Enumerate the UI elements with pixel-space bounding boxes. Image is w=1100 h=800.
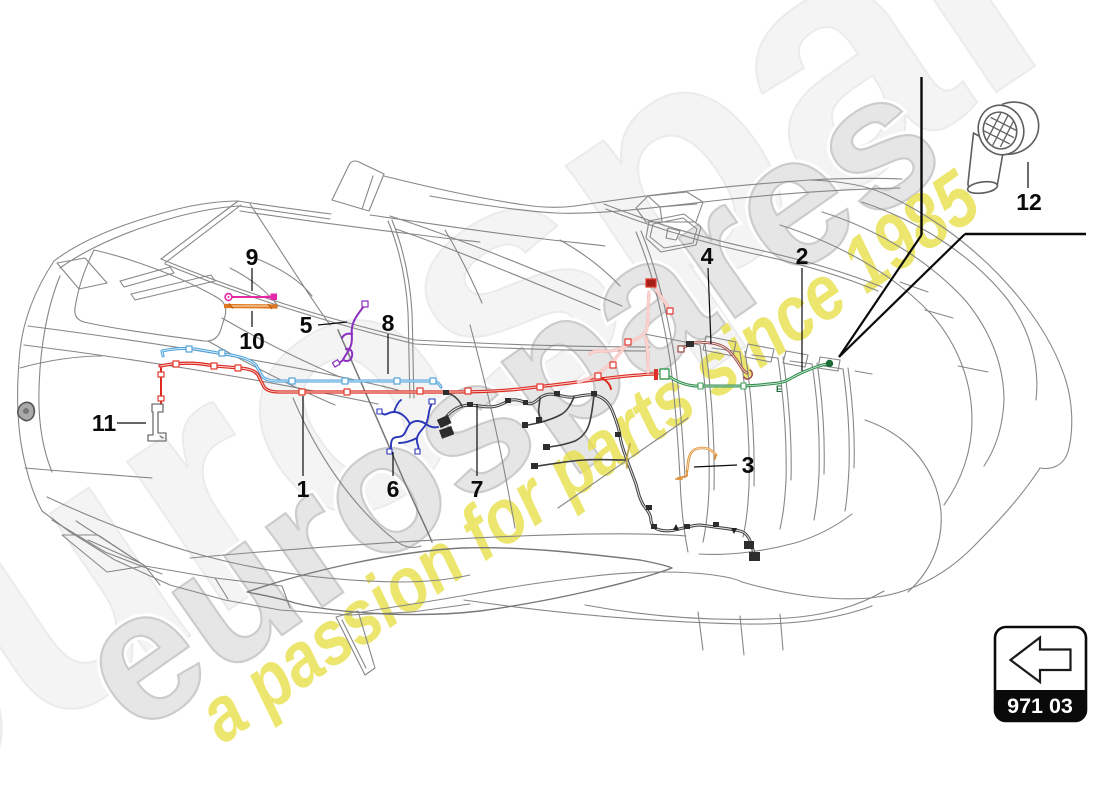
svg-text:11: 11 [92,410,117,436]
svg-text:10: 10 [239,328,265,354]
svg-text:6: 6 [387,476,400,502]
svg-text:5: 5 [300,312,313,338]
svg-text:2: 2 [796,243,809,269]
svg-text:9: 9 [246,244,259,270]
svg-text:7: 7 [471,476,484,502]
svg-text:1: 1 [297,476,310,502]
svg-text:E: E [776,384,782,394]
svg-text:8: 8 [382,310,395,336]
svg-text:971 03: 971 03 [1007,694,1073,718]
svg-text:4: 4 [701,243,714,269]
svg-text:3: 3 [742,452,755,478]
svg-text:12: 12 [1016,189,1042,215]
